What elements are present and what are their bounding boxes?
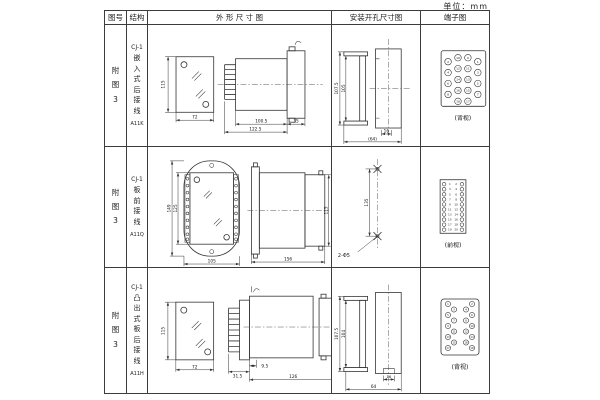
svg-text:16: 16 [454, 218, 458, 222]
model-label: CJ-1 [131, 176, 143, 183]
svg-text:6: 6 [447, 82, 449, 86]
svg-text:1: 1 [449, 182, 451, 186]
svg-text:10: 10 [470, 324, 474, 328]
manual-page: 单位：mm 图号 结构 外 形 尺 寸 图 安装开孔尺寸图 端子图 附图3 CJ… [0, 0, 600, 400]
col-header-structure: 结构 [127, 11, 148, 25]
svg-text:16: 16 [464, 340, 468, 344]
view-label: (背视) [455, 114, 472, 122]
figure-cell-row2: 附图3 [105, 147, 127, 268]
svg-text:6: 6 [455, 192, 457, 196]
view-label: (前视) [445, 241, 462, 249]
dim-plate: 9.5 [261, 363, 268, 369]
model-label: CJ-1 [131, 44, 143, 51]
svg-text:2: 2 [455, 182, 457, 186]
svg-text:7: 7 [477, 93, 479, 97]
outline-cell-row1: 115 72 100.5 122.5 35 [148, 25, 332, 147]
svg-text:5: 5 [449, 192, 451, 196]
dim-depth: 100.5 [255, 119, 267, 125]
svg-text:12: 12 [456, 67, 460, 71]
dim-inner-height: 125 [173, 204, 179, 212]
svg-text:4: 4 [447, 71, 449, 75]
dim-depth: 126 [289, 374, 297, 380]
structure-label: 板前接线 [134, 185, 141, 227]
svg-text:17: 17 [448, 223, 452, 227]
dim-front-width: 72 [192, 115, 198, 121]
dim-inner-height: 105 [341, 84, 347, 92]
dimension-table: 图号 结构 外 形 尺 寸 图 安装开孔尺寸图 端子图 附图3 CJ-1 嵌入式… [104, 10, 490, 394]
dim-front-width: 105 [208, 259, 216, 265]
svg-text:13: 13 [446, 335, 450, 339]
svg-text:4: 4 [455, 187, 457, 191]
dimension-lines [165, 57, 305, 134]
svg-text:14: 14 [454, 213, 458, 217]
figure-number: 附图3 [112, 309, 120, 352]
svg-text:15: 15 [448, 218, 452, 222]
svg-text:18: 18 [454, 223, 458, 227]
terminal-diagram-row1: 246810121416911131513571817 (背视) [421, 25, 489, 146]
figure-number: 附图3 [112, 186, 120, 229]
structure-cell-row2: CJ-1 板前接线 A11Q [127, 147, 148, 268]
structure-cell-row1: CJ-1 嵌入式后接线 A11K [127, 25, 148, 147]
outline-cell-row3: 115 72 31.5 9.5 126 [148, 268, 332, 393]
svg-text:12: 12 [464, 329, 468, 333]
type-code: A11H [130, 371, 144, 377]
svg-text:3: 3 [449, 187, 451, 191]
col-header-outline: 外 形 尺 寸 图 [148, 11, 332, 25]
terminal-cell-row1: 246810121416911131513571817 (背视) [421, 25, 489, 147]
svg-text:8: 8 [447, 93, 449, 97]
terminal-diagram-row2: 1234567891011121314151617181920 (前视) [421, 147, 489, 267]
type-code: A11K [130, 121, 143, 127]
svg-text:3: 3 [477, 71, 479, 75]
outline-drawing-row1: 115 72 100.5 122.5 35 [148, 25, 331, 146]
svg-text:18: 18 [456, 99, 460, 103]
dim-front-height: 115 [160, 327, 166, 335]
mounting-drawing-row1: 107.5 105 16 (64) [332, 25, 420, 146]
svg-text:11: 11 [448, 207, 452, 211]
svg-text:15: 15 [466, 89, 470, 93]
outline-cell-row2: 149 125 105 156 115 [148, 147, 332, 268]
svg-text:10: 10 [456, 56, 460, 60]
svg-text:2: 2 [447, 60, 449, 64]
dim-slot-width: 16 [384, 128, 390, 134]
svg-text:16: 16 [456, 89, 460, 93]
terminal-circles: 246810121416911131513571817 [445, 54, 481, 104]
hole-note: 2-Φ5 [338, 253, 350, 259]
outline-drawing-row3: 115 72 31.5 9.5 126 [148, 268, 331, 393]
svg-text:12: 12 [454, 207, 458, 211]
dim-outer-height: 107.5 [334, 82, 340, 94]
svg-text:19: 19 [448, 228, 452, 232]
structure-label: 凸出式板后接线 [134, 293, 141, 367]
svg-text:18: 18 [470, 346, 474, 350]
dim-slot-width: 16 [386, 375, 391, 379]
svg-text:13: 13 [466, 78, 470, 82]
svg-text:9: 9 [449, 202, 451, 206]
view-label: (背视) [452, 363, 469, 371]
figure-cell-row3: 附图3 [105, 268, 127, 393]
mounting-cell-row2: 135 2-Φ5 [332, 147, 421, 268]
terminal-circles: 135791113151724681012141618 [445, 301, 474, 350]
structure-label: 嵌入式后接线 [134, 53, 141, 116]
svg-text:20: 20 [454, 228, 458, 232]
mounting-drawing-row3: 107.5 104 16 64 [332, 268, 420, 393]
dim-hole-spacing: 135 [364, 198, 370, 206]
col-header-terminal: 端子图 [421, 11, 489, 25]
mounting-cell-row1: 107.5 105 16 (64) [332, 25, 421, 147]
mounting-cell-row3: 107.5 104 16 64 [332, 268, 421, 393]
svg-text:11: 11 [452, 329, 456, 333]
svg-text:14: 14 [456, 78, 460, 82]
dim-outer-height: 107.5 [334, 328, 340, 340]
svg-text:9: 9 [467, 56, 469, 60]
svg-text:5: 5 [477, 82, 479, 86]
dim-width: 64 [371, 384, 377, 390]
svg-text:7: 7 [449, 197, 451, 201]
svg-text:17: 17 [466, 99, 470, 103]
terminal-diagram-row3: 135791113151724681012141618 (背视) [421, 268, 489, 393]
terminal-cell-row3: 135791113151724681012141618 (背视) [421, 268, 489, 393]
svg-text:14: 14 [470, 335, 474, 339]
dim-side-height: 115 [323, 206, 329, 214]
col-header-mounting: 安装开孔尺寸图 [332, 11, 421, 25]
terminal-cell-row2: 1234567891011121314151617181920 (前视) [421, 147, 489, 268]
structure-cell-row3: CJ-1 凸出式板后接线 A11H [127, 268, 148, 393]
col-header-figure: 图号 [105, 11, 127, 25]
dim-inner-height: 104 [341, 330, 347, 338]
model-label: CJ-1 [131, 284, 143, 291]
type-code: A11Q [130, 232, 144, 238]
dim-depth: 156 [284, 257, 292, 263]
mounting-drawing-row2: 135 2-Φ5 [332, 147, 420, 267]
dim-stub: 31.5 [233, 374, 243, 380]
svg-text:8: 8 [455, 197, 457, 201]
figure-cell-row1: 附图3 [105, 25, 127, 147]
svg-text:11: 11 [466, 67, 470, 71]
terminal-circles: 1234567891011121314151617181920 [442, 182, 463, 232]
svg-text:1: 1 [477, 60, 479, 64]
dim-flange: 35 [293, 119, 299, 125]
dim-front-height: 149 [167, 204, 173, 212]
svg-text:17: 17 [446, 346, 450, 350]
figure-number: 附图3 [112, 64, 120, 107]
dim-width: (64) [368, 136, 377, 142]
outline-drawing-row2: 149 125 105 156 115 [148, 147, 331, 267]
dim-total-depth: 122.5 [249, 127, 261, 133]
svg-text:13: 13 [448, 213, 452, 217]
dim-front-width: 72 [192, 364, 198, 370]
svg-text:10: 10 [454, 202, 458, 206]
dim-front-height: 115 [161, 80, 167, 88]
svg-text:15: 15 [452, 340, 456, 344]
